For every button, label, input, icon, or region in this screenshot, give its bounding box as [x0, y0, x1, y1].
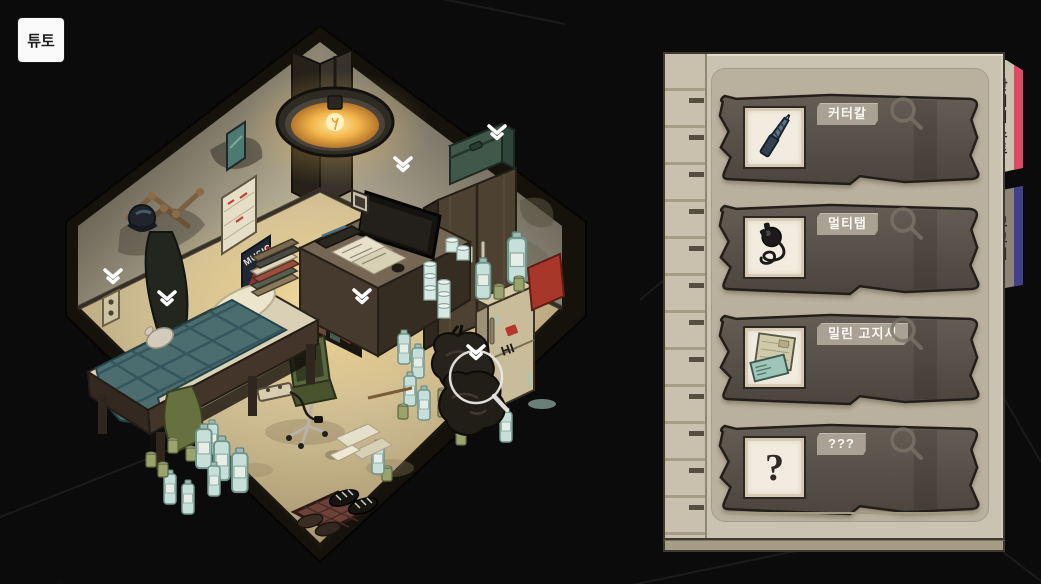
clue-thumb-multitap: [743, 216, 806, 279]
tutorial-button[interactable]: 튜토: [18, 18, 64, 62]
clue-thumb-cutter: [743, 106, 806, 169]
power-strip-plug-icon: [745, 218, 804, 277]
clue-name-label: ???: [817, 433, 866, 455]
panel-binding: [665, 54, 707, 538]
game-screen: MUSIC: [0, 0, 1041, 584]
svg-text:?: ?: [765, 447, 784, 489]
overdue-bills-icon: [745, 328, 804, 387]
clue-slot-cutter[interactable]: 커터칼: [713, 90, 987, 187]
clue-name-label: 커터칼: [817, 103, 878, 125]
magnifier-icon[interactable]: [889, 206, 925, 242]
tab-report-stripe: [1014, 186, 1023, 292]
clue-slot-unknown[interactable]: ? ???: [713, 420, 987, 517]
magnifier-icon[interactable]: [889, 316, 925, 352]
box-cutter-icon: [745, 108, 804, 167]
unknown-item-icon: ?: [745, 438, 804, 497]
magnifier-icon[interactable]: [889, 426, 925, 462]
clue-slot-multitap[interactable]: 멀티탭: [713, 200, 987, 297]
clue-thumb-unknown: ?: [743, 436, 806, 499]
panel-bottom-edge: [663, 540, 1005, 552]
clue-thumb-bills: [743, 326, 806, 389]
mouse: [392, 264, 405, 273]
clue-name-label: 멀티탭: [817, 213, 878, 235]
magnifier-icon[interactable]: [889, 96, 925, 132]
clue-slot-bills[interactable]: 밀린 고지서: [713, 310, 987, 407]
clue-panel: 단서리스트 보고서: [663, 52, 1005, 552]
clue-list: 커터칼: [711, 68, 989, 522]
clue-panel-body: 커터칼: [663, 52, 1005, 540]
tab-clue-list-stripe: [1014, 60, 1023, 176]
